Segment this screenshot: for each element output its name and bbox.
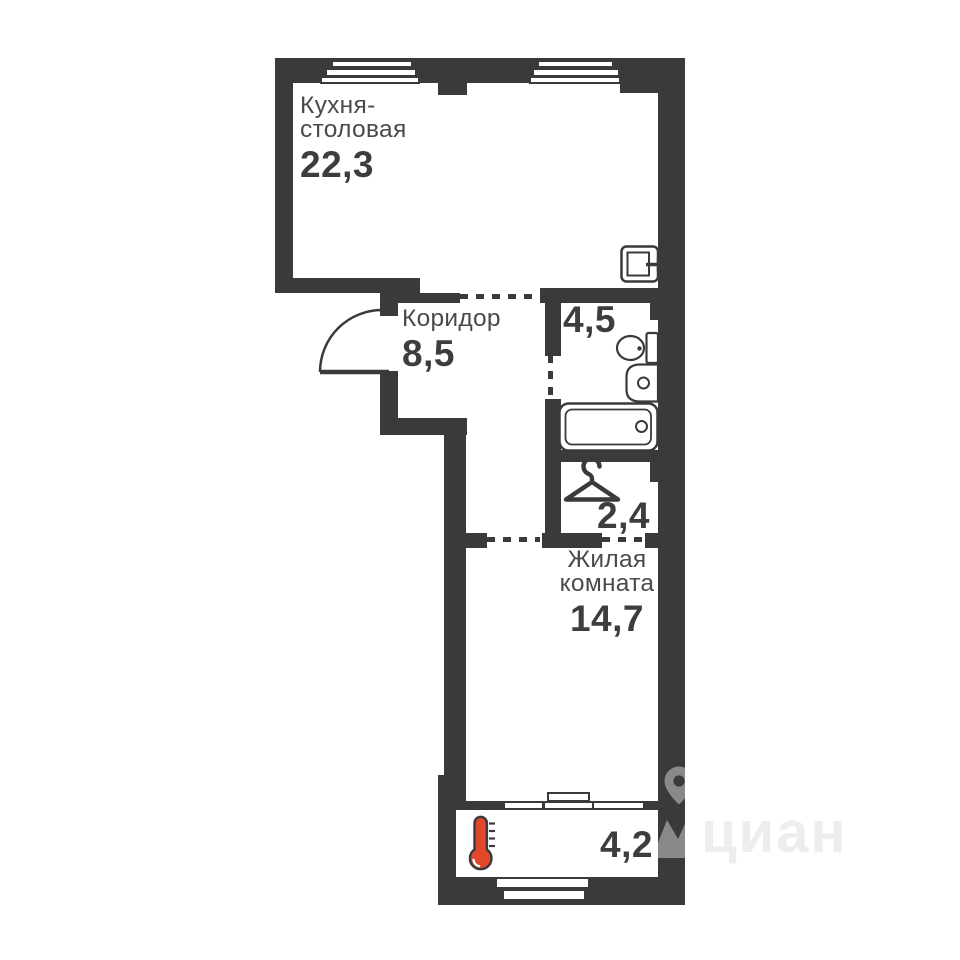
room-name: Жилая [547,548,667,572]
room-name: столовая [300,118,407,142]
wardrobe-label: 2,4 [597,497,650,535]
living-room-label: Жилая комната 14,7 [547,548,667,638]
room-area: 4,2 [600,826,653,864]
room-area: 14,7 [547,600,667,638]
toilet-icon [617,333,658,363]
hatch-icon [622,247,659,282]
corridor-label: Коридор 8,5 [402,307,501,373]
sink-icon [627,365,659,402]
thermometer-icon [470,817,495,869]
hanger-icon [566,458,618,499]
cian-watermark-text: циан [701,804,848,862]
room-area: 22,3 [300,146,407,184]
kitchen-label: Кухня- столовая 22,3 [300,94,407,184]
entry-door-arc [320,310,389,372]
room-name: Коридор [402,307,501,331]
bathtub-icon [560,404,658,451]
room-name: комната [547,572,667,596]
room-area: 2,4 [597,497,650,535]
balcony-label: 4,2 [600,826,653,864]
bathroom-label: 4,5 [563,301,616,339]
room-area: 4,5 [563,301,616,339]
floor-plan: Кухня- столовая 22,3 Коридор 8,5 4,5 2,4… [0,0,960,960]
room-name: Кухня- [300,94,407,118]
map-pin-icon [652,767,704,859]
room-area: 8,5 [402,335,501,373]
